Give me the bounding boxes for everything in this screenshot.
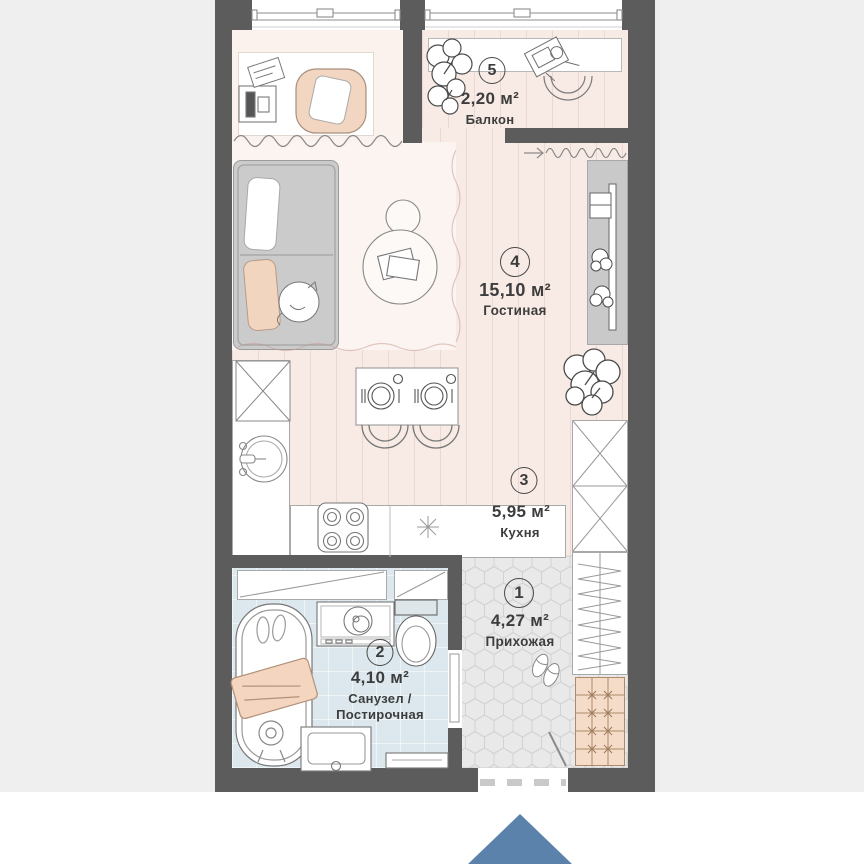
wall-left: [215, 0, 232, 792]
wall-pier-topright: [622, 0, 655, 30]
room-name-bathroom: Санузел /: [348, 691, 411, 706]
room-number-bathroom: 2: [367, 639, 394, 666]
room-area-kitchen: 5,95 м²: [492, 502, 550, 522]
wall-bottom-right: [568, 768, 655, 792]
room-area-balcony: 2,20 м²: [461, 89, 519, 109]
room-area-living: 15,10 м²: [479, 280, 551, 301]
room-number-hallway: 1: [504, 578, 534, 608]
hallway-hex-floor: [0, 0, 864, 864]
room-number-balcony: 5: [479, 57, 506, 84]
wall-bottom-left: [215, 768, 478, 792]
room-name-balcony: Балкон: [466, 112, 515, 127]
floor-plan-page: 1 4,27 м² Прихожая 2 4,10 м² Санузел / П…: [0, 0, 864, 864]
wall-balcony-divider: [403, 0, 422, 143]
room-name-kitchen: Кухня: [500, 525, 540, 540]
tv-console: [587, 160, 628, 345]
kitchen-counter-left: [232, 360, 290, 558]
wall-right: [628, 0, 655, 792]
room-number-living: 4: [500, 247, 530, 277]
tall-cabinet: [572, 420, 628, 552]
entrance-dashed-line: [480, 779, 566, 786]
room-name-living: Гостиная: [483, 303, 546, 318]
room-name-hallway: Прихожая: [485, 634, 554, 649]
bath-top-panel-2: [394, 570, 448, 600]
bath-top-panel-1: [237, 570, 387, 600]
wall-kitchen-bath: [215, 555, 462, 568]
balcony-desk: [428, 38, 622, 72]
sofa: [233, 160, 339, 350]
shoe-tile-grid: [575, 677, 625, 766]
wall-pier-topleft: [215, 0, 252, 30]
logo-triangle-icon: [468, 814, 572, 864]
room-area-bathroom: 4,10 м²: [351, 668, 409, 688]
wall-balcony-bottom: [505, 128, 630, 143]
bathroom-door-opening: [448, 650, 462, 728]
room-name2-bathroom: Постирочная: [336, 707, 424, 722]
room-number-kitchen: 3: [511, 467, 538, 494]
hall-wardrobe: [572, 552, 628, 675]
room-area-hallway: 4,27 м²: [491, 611, 549, 631]
